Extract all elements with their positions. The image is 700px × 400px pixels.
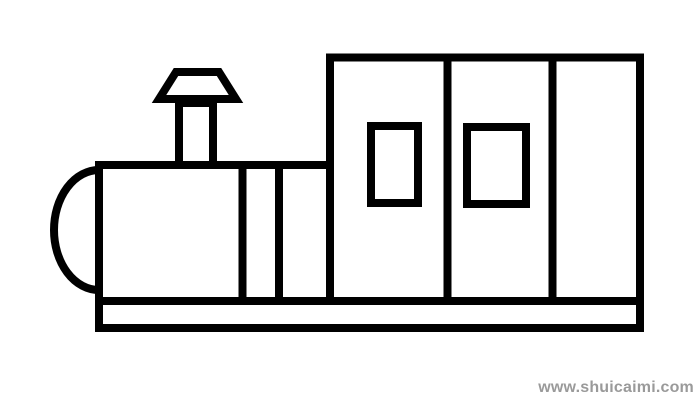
train-cab-window-1-shape [371,126,418,203]
train-chimney-stack-shape [179,103,213,165]
train-drawing-page: www.shuicaimi.com [0,0,700,400]
train-base-platform-shape [99,301,640,328]
train-boiler-shape [99,165,330,301]
site-watermark: www.shuicaimi.com [538,379,694,397]
train-front-arc-shape [54,170,99,290]
train-cab-window-2-shape [467,127,526,204]
train-drawing [0,0,700,400]
train-chimney-cap-shape [159,72,236,99]
